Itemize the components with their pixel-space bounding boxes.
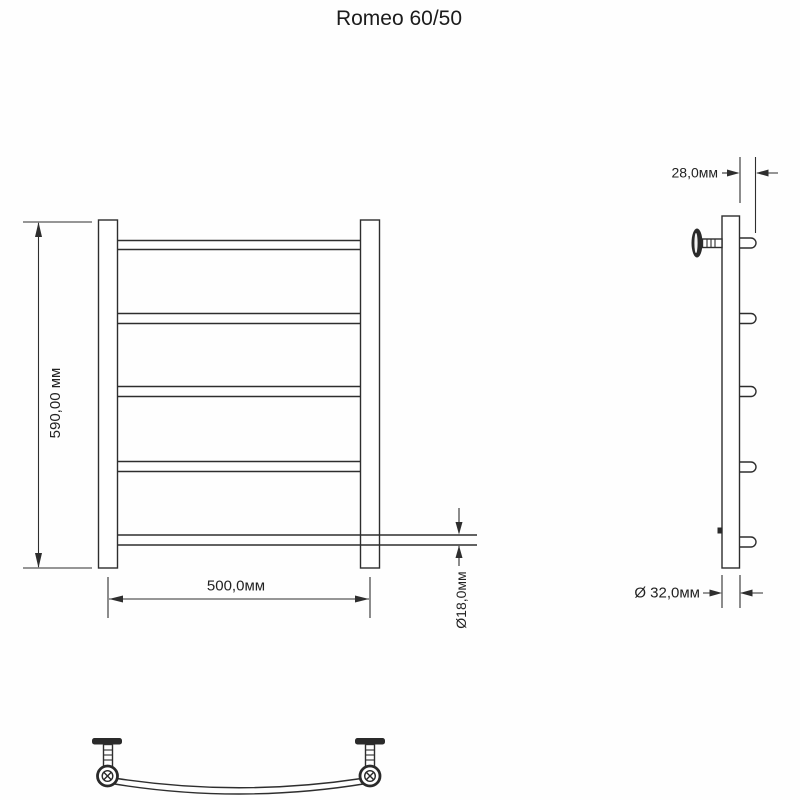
- bottom-right-bracket: [355, 738, 385, 786]
- rung-diameter-label: Ø18,0мм: [453, 571, 469, 628]
- arrow-up-icon: [456, 546, 463, 559]
- side-rung-4: [740, 462, 757, 472]
- page-title: Romeo 60/50: [336, 7, 462, 31]
- arrow-down-icon: [456, 522, 463, 535]
- wall-plate-icon: [355, 738, 385, 745]
- front-rung-5: [118, 535, 478, 545]
- front-view: [99, 220, 478, 568]
- bottom-view: [92, 738, 385, 794]
- front-rung-4: [118, 462, 361, 472]
- front-rung-diameter-dimension: Ø18,0мм: [453, 508, 469, 629]
- arrow-right-icon: [727, 170, 740, 177]
- arrow-right-icon: [355, 596, 369, 603]
- front-rung-3: [118, 387, 361, 397]
- front-rung-1: [118, 241, 361, 250]
- side-wall-bracket: [692, 229, 723, 258]
- post-diameter-label: Ø 32,0мм: [634, 585, 700, 602]
- bottom-rail-outer-edge: [117, 779, 362, 788]
- arrow-right-icon: [710, 590, 723, 597]
- front-height-dimension: 590,00 мм: [23, 222, 92, 568]
- height-dimension-label: 590,00 мм: [47, 368, 64, 439]
- width-dimension-label: 500,0мм: [207, 578, 265, 595]
- side-rung-2: [740, 314, 757, 324]
- side-rung-5: [740, 537, 757, 547]
- side-post-marker: [718, 528, 723, 534]
- front-right-post: [361, 220, 380, 568]
- side-post-diameter-dimension: Ø 32,0мм: [634, 575, 763, 608]
- front-width-dimension: 500,0мм: [108, 577, 370, 618]
- side-post: [722, 216, 740, 568]
- rung-offset-label: 28,0мм: [672, 165, 719, 181]
- arrow-left-icon: [109, 596, 123, 603]
- drawing-canvas: Romeo 60/50: [0, 0, 800, 800]
- arrow-left-icon: [740, 590, 753, 597]
- bottom-left-bracket: [92, 738, 122, 786]
- arrow-up-icon: [35, 222, 42, 237]
- front-left-post: [99, 220, 118, 568]
- technical-drawing-svg: 590,00 мм 500,0мм Ø18,0мм: [0, 0, 800, 800]
- wall-plate-icon: [92, 738, 122, 745]
- arrow-left-icon: [756, 170, 769, 177]
- arrow-down-icon: [35, 553, 42, 568]
- side-rung-3: [740, 387, 757, 397]
- side-rung-1: [740, 238, 757, 248]
- front-rung-2: [118, 314, 361, 324]
- bracket-stem: [703, 239, 723, 248]
- side-view: [692, 216, 757, 568]
- bottom-rail-inner-edge: [112, 784, 367, 795]
